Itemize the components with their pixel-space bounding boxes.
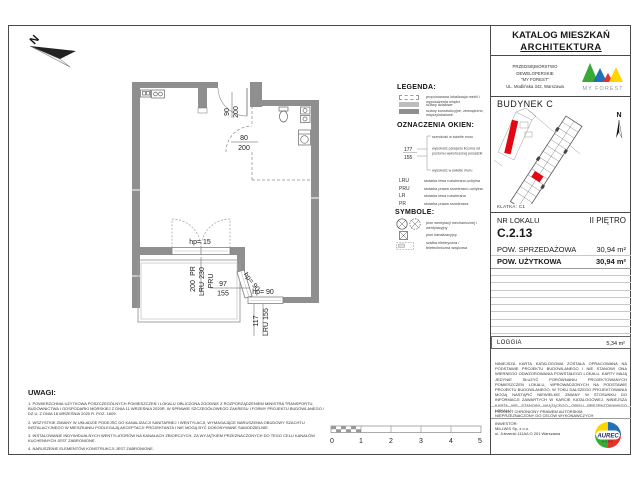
loggia-row: LOGGIA 5,34 m²	[491, 336, 631, 349]
aurec-logo-text: AUREC	[596, 434, 619, 440]
symbol-label: pion kanalizacyjny	[426, 233, 488, 238]
empty-row-line	[491, 311, 631, 312]
scale-tick-label: 2	[389, 438, 393, 445]
divider	[491, 96, 631, 97]
window-type-label: stolarka prawa rozwierano-uchylna	[424, 187, 483, 192]
legend-title: LEGENDA:	[397, 84, 436, 91]
developer-line: DEWELOPERSKIE	[493, 71, 577, 78]
window-legend-mid-label-1: wysokość parapetu liczona od	[432, 147, 480, 151]
panel-divider	[490, 25, 491, 455]
toilet-icon	[279, 107, 288, 122]
legend-swatch-furniture	[399, 95, 419, 100]
legend-item-label: ściany konstrukcyjne, zewnętrzne, między…	[426, 109, 484, 118]
dim-balcony-hp: hp= 15	[189, 239, 211, 246]
divider	[491, 418, 631, 419]
sewage-stack-icon	[399, 231, 408, 240]
scale-tick-label: 0	[330, 438, 334, 445]
empty-row-line	[491, 326, 631, 327]
dim-155b: 155	[263, 308, 270, 320]
empty-row-line	[491, 333, 631, 334]
developer-line: UL. Modlińska 342, Warszawa	[493, 84, 577, 91]
dim-bathdoor-height: 200	[238, 145, 250, 152]
empty-row-line	[491, 275, 631, 276]
dim-entry-height: 200	[233, 106, 240, 118]
symbol-label: pion wentylacji mechanicznej i wentylacy…	[426, 221, 488, 230]
investor-address: ul. Jutrzenki 111A/LO 201 Warszawa	[495, 431, 560, 436]
divider	[491, 55, 631, 56]
loggia-label: LOGGIA	[497, 340, 522, 346]
unit-number: C.2.13	[497, 226, 532, 240]
catalog-sheet: N	[0, 0, 640, 480]
window-sill-number: 155	[404, 155, 413, 161]
scale-tick-label: 3	[419, 438, 423, 445]
dim-pr-200: 200	[190, 280, 197, 292]
loggia-value: 5,34 m²	[606, 341, 625, 347]
my-forest-logo-text: MY FOREST	[583, 86, 624, 92]
scale-tick-label: 5	[478, 438, 482, 445]
window-type-code: PR	[399, 201, 406, 207]
site-north-arrow-icon: N	[616, 112, 622, 138]
symbol-label: szafka elektryczna / teletechniczna wnęk…	[426, 241, 484, 250]
developer-info: PRZEDSIĘBIORSTWO DEWELOPERSKIE "MY FORES…	[493, 64, 577, 91]
dim-117: 117	[253, 315, 260, 326]
note-item: 3. INSTALOWANIE INDYWIDUALNYCH WENTYLATO…	[28, 433, 333, 443]
legend-swatch-partition-wall	[399, 102, 419, 107]
area-usable-label: POW. UŻYTKOWA	[497, 257, 562, 266]
catalog-title: KATALOG MIESZKAŃ	[491, 30, 631, 41]
area-usable-value: 30,94 m²	[560, 257, 626, 266]
developer-line: PRZEDSIĘBIORSTWO	[493, 64, 577, 71]
dim-155: 155	[217, 291, 229, 298]
floor-label: II PIĘTRO	[560, 216, 626, 225]
empty-row-line	[491, 304, 631, 305]
empty-row-line	[491, 297, 631, 298]
aurec-logo-subtext: HOME	[602, 440, 614, 444]
vent-stack-icon	[396, 218, 422, 230]
scale-bar: 0 1 2 3 4 5	[330, 423, 482, 447]
staircase-label: KLATKA: C1	[497, 204, 525, 209]
dim-lru-b: LRU	[263, 322, 270, 336]
scale-tick-label: 1	[359, 438, 363, 445]
cabinet-symbol-icon	[396, 242, 414, 250]
divider	[491, 212, 631, 213]
svg-text:N: N	[616, 112, 621, 119]
symbols-title: SYMBOLE:	[395, 209, 434, 216]
washer-icon	[299, 130, 311, 145]
empty-row-line	[491, 319, 631, 320]
dim-entry-width: 90	[224, 108, 231, 116]
divider	[491, 406, 631, 407]
window-type-label: stolarka prawa rozwierana	[424, 202, 468, 207]
site-building-row	[509, 115, 583, 204]
dim-97: 97	[219, 281, 227, 288]
legend-swatch-structural-wall	[399, 109, 419, 114]
dim-bathdoor-width: 80	[240, 135, 248, 142]
investor-info: INWESTOR: MILLWIS Sp. z o.o. ul. Jutrzen…	[495, 421, 560, 437]
window-type-code: PRU	[399, 186, 410, 192]
window-type-label: stolarka lewa rozwierana	[424, 194, 466, 199]
kitchen-icons	[141, 90, 165, 98]
window-legend-mid-label-2: poziomu wykończonej posadzki	[432, 152, 483, 156]
unit-number-label: NR LOKALU	[497, 216, 540, 225]
window-type-label: stolarka lewa rozwierano-uchylna	[424, 179, 480, 184]
window-type-code: LR	[399, 193, 405, 199]
dim-230: 230	[199, 267, 206, 279]
empty-row-line	[491, 282, 631, 283]
note-item: 2. WSZYSTKIE ZMIANY W UKŁADZIE PODEJŚĆ D…	[28, 420, 333, 430]
window-sill-number: 177	[404, 147, 413, 153]
dim-lru: LRU	[199, 282, 206, 296]
floor-plan: 90 200 80 200 hp= 15 PR 200 230 LRU PRU …	[100, 50, 380, 350]
dim-pru: PRU	[208, 274, 215, 289]
sink-units-icon	[301, 107, 311, 123]
row-divider	[491, 255, 631, 256]
window-legend-bottom-label: wysokość w świetle muru	[432, 169, 472, 173]
note-item: 4. NARUSZENIE ELEMENTÓW KONSTRUKCJI JEST…	[28, 446, 333, 451]
site-highlight-building	[504, 120, 518, 155]
aurec-logo: AUREC HOME	[594, 421, 622, 449]
north-arrow-icon: N	[24, 26, 82, 72]
svg-text:N: N	[28, 33, 42, 47]
site-plan: N	[492, 108, 630, 204]
architecture-subtitle: ARCHITEKTURA	[491, 42, 631, 53]
empty-row-line	[491, 290, 631, 291]
notes-title: UWAGI:	[28, 388, 333, 397]
window-legend-top-label: szerokość w świetle muru	[432, 135, 473, 139]
balcony-door	[172, 248, 230, 255]
developer-line: "MY FOREST"	[493, 77, 577, 84]
scale-tick-label: 4	[449, 438, 453, 445]
legend-item-label: ściany działowe	[426, 103, 488, 108]
window-legend-diagram: 177 155 szerokość w świetle muru wysokoś…	[397, 132, 489, 178]
notes-block: UWAGI: 1. POWIERZCHNIA UŻYTKOWA POSZCZEG…	[28, 388, 333, 452]
row-divider	[491, 268, 631, 269]
window-type-code: LRU	[399, 178, 409, 184]
area-sales-value: 30,94 m²	[560, 245, 626, 254]
note-item: 1. POWIERZCHNIA UŻYTKOWA POSZCZEGÓLNYCH …	[28, 401, 333, 417]
my-forest-logo: MY FOREST	[580, 60, 630, 92]
dim-hp90: hp= 90	[252, 289, 274, 296]
dim-pr: PR	[190, 266, 197, 276]
window-legend-title: OZNACZENIA OKIEN:	[397, 122, 474, 129]
